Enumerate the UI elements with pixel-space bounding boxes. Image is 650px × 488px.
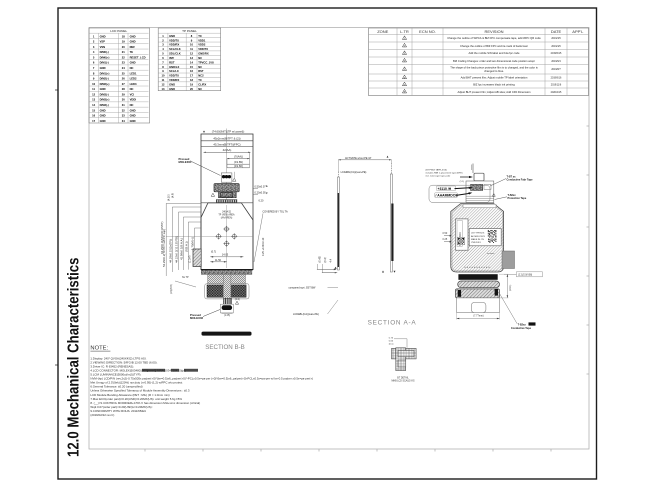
svg-text:0.25 +0.30/-0.10: 0.25 +0.30/-0.10 xyxy=(262,237,265,256)
svg-text:10: 10 xyxy=(162,74,165,78)
svg-text:includes FAE is placement tape: includes FAE is placement tape (BHT) xyxy=(426,172,463,175)
svg-text:VDD/TX: VDD/TX xyxy=(169,38,179,42)
svg-text:2019/4/6: 2019/4/6 xyxy=(551,45,561,48)
svg-text:4: 4 xyxy=(404,61,406,63)
svg-text:xx-xxxx: xx-xxxx xyxy=(487,253,495,255)
svg-text:ZONE: ZONE xyxy=(377,29,388,34)
svg-text:1: 1 xyxy=(162,34,164,38)
svg-text:0.75: 0.75 xyxy=(389,337,394,339)
svg-text:33: 33 xyxy=(122,114,125,118)
svg-text:COVERED BY TSL TA: COVERED BY TSL TA xyxy=(263,210,288,213)
svg-text:REVISION: REVISION xyxy=(484,29,503,34)
svg-text:VSP: VSP xyxy=(100,40,106,44)
svg-text:27: 27 xyxy=(122,82,125,86)
svg-text:BIZ Coding Changes: order and: BIZ Coding Changes: order and two dimens… xyxy=(453,59,535,63)
svg-text:2019/6/4: 2019/6/4 xyxy=(551,60,561,63)
svg-text:(0.43): (0.43) xyxy=(318,256,321,263)
svg-text:AF MFDXXXX: AF MFDXXXX xyxy=(471,235,486,238)
svg-text:Change the outline of BIZ FPC: Change the outline of BIZ FPC and ita ma… xyxy=(460,44,528,48)
svg-text:(19.66): (19.66) xyxy=(234,164,243,168)
svg-text:YMD2019: YMD2019 xyxy=(471,242,482,244)
svg-text:Adjust BHT present film; Adjus: Adjust BHT present film; Adjust AB sites… xyxy=(458,90,531,94)
svg-text:GND: GND xyxy=(169,82,175,86)
svg-text:SCL/CLK: SCL/CLK xyxy=(169,47,181,51)
svg-text:(4.9): (4.9) xyxy=(172,193,175,198)
svg-text:0.60: 0.60 xyxy=(389,341,394,343)
svg-text:TX: TX xyxy=(198,34,202,38)
svg-text:changed to blue.: changed to blue. xyxy=(484,69,504,73)
svg-text:D/M2(-): D/M2(-) xyxy=(100,77,109,81)
svg-text:D/M1(+): D/M1(+) xyxy=(100,71,110,75)
svg-text:VDD/TX: VDD/TX xyxy=(169,74,179,78)
svg-text:LCD PANEL: LCD PANEL xyxy=(110,29,127,33)
svg-text:3: 3 xyxy=(162,43,164,47)
svg-text:(7.77mm): (7.77mm) xyxy=(473,315,483,318)
svg-text:2019/8/7: 2019/8/7 xyxy=(551,68,561,71)
svg-text:2019/11/6: 2019/11/6 xyxy=(551,84,562,87)
svg-text:NC: NC xyxy=(198,56,202,60)
svg-text:2: 2 xyxy=(404,46,406,48)
svg-text:25: 25 xyxy=(122,71,125,75)
svg-text:LB TYPEXXX: LB TYPEXXX xyxy=(471,233,485,235)
svg-text:TP PANEL: TP PANEL xyxy=(182,29,197,33)
svg-text:TE: TE xyxy=(130,50,134,54)
svg-text:incl. none-tape tape-code: incl. none-tape tape-code xyxy=(426,175,451,178)
svg-text:5: 5 xyxy=(162,52,164,56)
svg-text:VCI: VCI xyxy=(130,92,135,96)
svg-text:26: 26 xyxy=(122,77,125,81)
svg-text:MADE IN CN: MADE IN CN xyxy=(471,238,484,241)
svg-text:VSN: VSN xyxy=(100,45,106,49)
svg-text:(2.2)/2.0(V08): (2.2)/2.0(V08) xyxy=(518,274,532,276)
svg-text:GND: GND xyxy=(130,61,136,65)
svg-text:11: 11 xyxy=(162,78,165,82)
svg-text:SECTION A-A: SECTION A-A xyxy=(368,320,417,327)
svg-text:(1.1): (1.1) xyxy=(460,181,465,183)
svg-text:GND: GND xyxy=(130,114,136,118)
svg-text:GND: GND xyxy=(100,66,106,70)
svg-text:(10.1): (10.1) xyxy=(509,285,512,291)
svg-text:LCD&BL(CA)(rear+PE): LCD&BL(CA)(rear+PE) xyxy=(293,313,319,316)
svg-text:compared sqrt .SST BW: compared sqrt .SST BW xyxy=(289,287,317,290)
svg-text:/ AAAMMDCC: / AAAMMDCC xyxy=(436,194,459,198)
svg-text:TP VIEW AREA: TP VIEW AREA xyxy=(218,214,235,217)
svg-text:12.0 Mechanical Characteristic: 12.0 Mechanical Characteristics xyxy=(65,258,82,457)
svg-text:0.50±0.07: 0.50±0.07 xyxy=(255,186,267,189)
svg-text:(0.1): (0.1) xyxy=(389,344,394,346)
svg-text:L.TR: L.TR xyxy=(400,29,409,34)
svg-text:1: 1 xyxy=(93,34,95,38)
svg-text:(0.7): (0.7) xyxy=(211,250,216,253)
svg-text:24: 24 xyxy=(122,66,125,70)
svg-text:15: 15 xyxy=(92,108,95,112)
svg-text:17: 17 xyxy=(92,119,95,123)
svg-text:(2.2): (2.2) xyxy=(235,298,240,301)
svg-text:GND: GND xyxy=(169,34,175,38)
svg-text:42(AA): 42(AA) xyxy=(223,148,232,152)
svg-text:NL TP: NL TP xyxy=(182,276,189,279)
svg-text:2019/9/16: 2019/9/16 xyxy=(551,77,562,80)
svg-text:18: 18 xyxy=(190,78,193,82)
svg-text:14: 14 xyxy=(92,103,95,107)
svg-text:GND: GND xyxy=(130,108,136,112)
svg-text:5: 5 xyxy=(93,55,95,59)
svg-text:GND: GND xyxy=(130,40,136,44)
svg-text:MOLEX01: MOLEX01 xyxy=(179,160,193,164)
svg-text:Add BHT present film; Adjust m: Add BHT present film; Adjust mobile TP l… xyxy=(461,76,528,80)
svg-text:6: 6 xyxy=(404,77,406,79)
svg-text:41.98±0.1(B.A.A.): 41.98±0.1(B.A.A.) xyxy=(179,238,183,260)
svg-text:32: 32 xyxy=(122,108,125,112)
svg-text:13: 13 xyxy=(162,87,165,91)
svg-text:10: 10 xyxy=(190,43,193,47)
svg-text:Conductive Tape: Conductive Tape xyxy=(511,327,532,330)
svg-text:3: 3 xyxy=(93,45,95,49)
svg-text:GND: GND xyxy=(130,34,136,38)
svg-text:GND: GND xyxy=(100,87,106,91)
svg-text:RST: RST xyxy=(169,60,175,64)
svg-text:4: 4 xyxy=(162,47,164,51)
svg-text:2020/4/15: 2020/4/15 xyxy=(551,91,562,94)
svg-text:(2019/02/22 rev.C): (2019/02/22 rev.C) xyxy=(90,413,114,417)
svg-text:18: 18 xyxy=(122,34,125,38)
svg-text:8: 8 xyxy=(93,71,95,75)
svg-text:19: 19 xyxy=(122,40,125,44)
svg-text:Add the mobile S/N label and b: Add the mobile S/N label and b1a fpc cod… xyxy=(469,51,520,55)
svg-text:14: 14 xyxy=(190,60,193,64)
svg-text:RST: RST xyxy=(198,69,204,73)
svg-text:7: 7 xyxy=(162,60,164,64)
svg-text:Change the outline of WPCA & B: Change the outline of WPCA & BIZ FPC com… xyxy=(447,36,541,40)
svg-text:(B:TF/BIZ TAPE-5/16): (B:TF/BIZ TAPE-5/16) xyxy=(426,169,448,172)
svg-text:NC: NC xyxy=(130,87,134,91)
svg-text:MHB LCD SCALE N/S: MHB LCD SCALE N/S xyxy=(392,380,415,383)
svg-text:2019/3/6: 2019/3/6 xyxy=(551,37,561,40)
svg-text:(7(AA)): (7(AA)) xyxy=(234,155,243,159)
svg-text:0.25: 0.25 xyxy=(443,238,448,241)
svg-text:23: 23 xyxy=(122,61,125,65)
svg-text:(13)(B.B): (13)(B.B) xyxy=(170,284,173,294)
svg-text:INT/: INT/ xyxy=(169,56,174,60)
svg-text:BIZ fpc increases black ink pr: BIZ fpc increases black ink printing xyxy=(473,83,515,87)
svg-text:12: 12 xyxy=(190,52,193,56)
svg-text:NC: NC xyxy=(198,87,202,91)
svg-text:12: 12 xyxy=(162,82,165,86)
svg-text:45.3mm(B/TFT&FPC): 45.3mm(B/TFT&FPC) xyxy=(213,142,240,146)
svg-text:NC: NC xyxy=(130,66,134,70)
svg-text:SECTION B-B: SECTION B-B xyxy=(205,344,245,351)
svg-text:D/M0(-): D/M0(-) xyxy=(100,50,109,54)
svg-text:8: 8 xyxy=(162,65,164,69)
svg-text:(1.25): (1.25) xyxy=(224,315,230,317)
svg-text:VDD1: VDD1 xyxy=(198,38,206,42)
svg-text:12: 12 xyxy=(92,92,95,96)
svg-text:30: 30 xyxy=(122,98,125,102)
svg-text:45x2mm(B/TFT & (2)): 45x2mm(B/TFT & (2)) xyxy=(213,137,240,141)
svg-text:Protection Tape: Protection Tape xyxy=(508,197,527,200)
svg-text:44.22±0.2(11.135/TB): 44.22±0.2(11.135/TB) xyxy=(175,236,179,263)
svg-text:11.50: 11.50 xyxy=(215,259,222,262)
svg-text:3: 3 xyxy=(404,53,406,55)
svg-text:(1.1x4): (1.1x4) xyxy=(189,255,192,263)
svg-text:240x432: 240x432 xyxy=(222,212,232,214)
svg-text:LED3: LED3 xyxy=(130,82,137,86)
svg-text:2: 2 xyxy=(93,40,95,44)
svg-text:8: 8 xyxy=(191,34,193,38)
svg-text:GND: GND xyxy=(100,108,106,112)
svg-text:GND: GND xyxy=(100,34,106,38)
svg-text:9: 9 xyxy=(93,77,95,81)
svg-text:GND/LX: GND/LX xyxy=(169,65,179,69)
svg-text:44.29±0.15(2x(TP)): 44.29±0.15(2x(TP)) xyxy=(168,239,172,263)
svg-text:APP'L: APP'L xyxy=(572,29,584,34)
svg-text:28: 28 xyxy=(122,87,125,91)
svg-text:4.4: 4.4 xyxy=(330,258,333,262)
svg-text:(7(B.A.)): (7(B.A.)) xyxy=(184,241,188,252)
svg-text:TPVCC_1V8: TPVCC_1V8 xyxy=(198,60,214,64)
svg-text:9: 9 xyxy=(162,69,164,73)
svg-text:(0.4): (0.4) xyxy=(324,257,327,262)
svg-text:20: 20 xyxy=(122,45,125,49)
svg-text:29: 29 xyxy=(122,92,125,96)
svg-text:NC: NC xyxy=(198,65,202,69)
svg-text:13: 13 xyxy=(92,98,95,102)
svg-text:VDD/TX: VDD/TX xyxy=(198,47,208,51)
svg-text:54.29±0.2(TP/TFT w/FPC sup): 54.29±0.2(TP/TFT w/FPC sup) xyxy=(162,229,166,267)
svg-text:7: 7 xyxy=(404,84,406,86)
svg-text:10: 10 xyxy=(92,82,95,86)
svg-text:GND: GND xyxy=(169,87,175,91)
svg-text:2: 2 xyxy=(162,38,164,42)
svg-text:1: 1 xyxy=(404,38,406,40)
svg-text:LCD&BL(CA)(rear+PE): LCD&BL(CA)(rear+PE) xyxy=(341,171,367,174)
svg-text:11: 11 xyxy=(190,47,193,51)
svg-text:13: 13 xyxy=(190,56,193,60)
svg-text:REF: REF xyxy=(130,45,136,49)
svg-text:9: 9 xyxy=(191,38,193,42)
svg-text:DATE: DATE xyxy=(551,29,562,34)
svg-text:RESET_LCD: RESET_LCD xyxy=(130,55,146,59)
svg-text:19: 19 xyxy=(190,82,193,86)
svg-text:D/M0(+): D/M0(+) xyxy=(100,55,110,59)
svg-text:NC: NC xyxy=(130,103,134,107)
svg-text:17: 17 xyxy=(190,74,193,78)
svg-text:15: 15 xyxy=(190,65,193,69)
svg-text:VDD/RX: VDD/RX xyxy=(169,43,179,47)
svg-text:(4.10): (4.10) xyxy=(168,194,171,201)
svg-text:D/M3(-): D/M3(-) xyxy=(100,103,109,107)
svg-text:SDL/CLK: SDL/CLK xyxy=(169,52,181,56)
svg-text:D/M1(-): D/M1(-) xyxy=(100,61,109,65)
svg-text:34: 34 xyxy=(122,119,125,123)
svg-text:31: 31 xyxy=(122,103,125,107)
svg-text:6.20: 6.20 xyxy=(259,200,264,203)
svg-text:LED1: LED1 xyxy=(130,71,137,75)
svg-text:GND/RX: GND/RX xyxy=(198,52,209,56)
svg-text:GND: GND xyxy=(100,119,106,123)
svg-text:+3110 /H: +3110 /H xyxy=(438,187,452,191)
svg-text:BT DETAIL: BT DETAIL xyxy=(397,376,409,379)
svg-text:ECN NO.: ECN NO. xyxy=(419,29,436,34)
svg-text:SCL/LX: SCL/LX xyxy=(169,69,179,73)
svg-text:16: 16 xyxy=(92,114,95,118)
svg-text:21: 21 xyxy=(122,50,125,54)
svg-text:4: 4 xyxy=(93,50,95,54)
svg-text:NC2: NC2 xyxy=(198,74,204,78)
svg-text:ACTIVATE w/out PE 1P: ACTIVATE w/out PE 1P xyxy=(345,157,372,160)
svg-text:GND: GND xyxy=(100,114,106,118)
svg-text:GND: GND xyxy=(130,119,136,123)
svg-text:6: 6 xyxy=(93,61,95,65)
svg-text:22: 22 xyxy=(122,55,125,59)
svg-text:D/M2(+): D/M2(+) xyxy=(100,82,110,86)
svg-text:11: 11 xyxy=(92,87,95,91)
svg-text:2019/5/15: 2019/5/15 xyxy=(551,52,562,55)
svg-text:1.70(M.H.): 1.70(M.H.) xyxy=(191,237,195,250)
svg-text:MOLEX02: MOLEX02 xyxy=(190,316,204,320)
svg-text:(74.60(INIT)(TP w/ panel)): (74.60(INIT)(TP w/ panel)) xyxy=(212,130,245,134)
svg-text:0.20±0.05: 0.20±0.05 xyxy=(255,192,267,195)
svg-text:16: 16 xyxy=(190,69,193,73)
svg-text:VDDI: VDDI xyxy=(130,98,137,102)
svg-text:NOTE:: NOTE: xyxy=(90,345,108,351)
svg-text:0.50: 0.50 xyxy=(443,232,448,235)
svg-text:CL/RX: CL/RX xyxy=(198,82,206,86)
svg-text:D/M3(+): D/M3(+) xyxy=(100,98,110,102)
svg-text:7: 7 xyxy=(93,66,95,70)
svg-text:VDD2: VDD2 xyxy=(198,43,206,47)
svg-text:20: 20 xyxy=(190,87,193,91)
svg-text:6: 6 xyxy=(162,56,164,60)
svg-text:14.05: 14.05 xyxy=(222,254,229,257)
svg-text:LED2: LED2 xyxy=(130,77,137,81)
svg-text:TX: TX xyxy=(198,78,202,82)
svg-text:VDD/RX: VDD/RX xyxy=(169,78,179,82)
svg-text:Conductive Fabr Tape: Conductive Fabr Tape xyxy=(507,179,534,182)
svg-text:D/M3(-): D/M3(-) xyxy=(100,92,109,96)
